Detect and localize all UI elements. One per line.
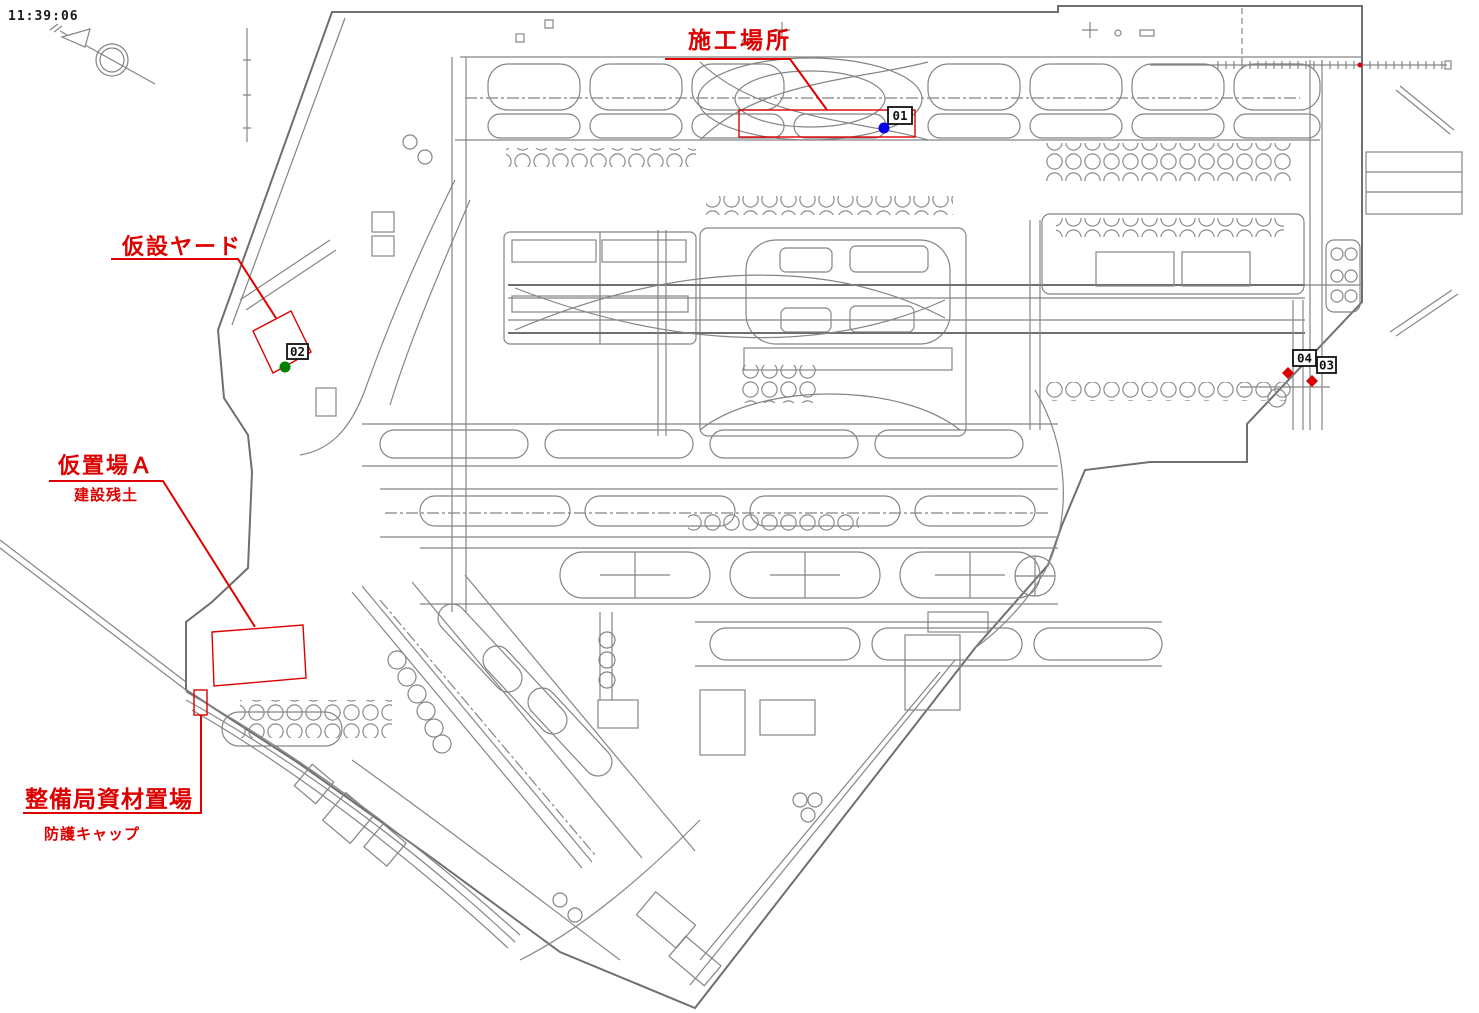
annotation-east-apron-markers: 04 03 bbox=[1282, 350, 1336, 387]
west-terminal bbox=[504, 232, 696, 344]
west-jetty bbox=[243, 28, 251, 142]
timestamp: 11:39:06 bbox=[8, 9, 79, 24]
marker-02-number: 02 bbox=[290, 344, 305, 359]
marker-03-dot bbox=[1306, 375, 1318, 387]
annotation-temporary-yard: 仮設ヤード 02 bbox=[111, 234, 311, 373]
construction-site-label: 施工場所 bbox=[688, 27, 792, 53]
annotation-temporary-storage-a: 仮置場Ａ 建設残土 bbox=[49, 453, 306, 686]
temporary-storage-a-hatch-area bbox=[212, 625, 306, 686]
approach-line-west bbox=[0, 540, 186, 690]
marker-02-dot bbox=[280, 362, 291, 373]
temporary-storage-a-label: 仮置場Ａ bbox=[57, 453, 154, 478]
survey-point-dot bbox=[1358, 63, 1363, 68]
southwest-diagonals bbox=[352, 575, 695, 868]
marker-04-number: 04 bbox=[1297, 351, 1312, 366]
annotation-construction-site: 施工場所 01 bbox=[665, 27, 915, 137]
west-apron-details bbox=[240, 135, 470, 455]
airport-linework bbox=[0, 6, 1462, 1008]
marker-01-dot bbox=[879, 123, 890, 134]
maintenance-storage-label: 整備局資材置場 bbox=[25, 786, 193, 812]
temporary-yard-label: 仮設ヤード bbox=[121, 234, 242, 259]
boundary-inner-edge bbox=[232, 18, 345, 325]
aircraft-stand-rows bbox=[240, 143, 1293, 738]
marker-03-number: 03 bbox=[1319, 358, 1334, 373]
temporary-storage-a-sublabel: 建設残土 bbox=[74, 486, 138, 504]
maintenance-storage-sublabel: 防護キャップ bbox=[44, 825, 140, 843]
site-plan-drawing: 施工場所 01 仮設ヤード 02 仮置場Ａ 建設残土 整備局資材置場 防護キャッ… bbox=[0, 0, 1479, 1013]
north-arrow-icon bbox=[50, 24, 155, 84]
temporary-yard-leader bbox=[111, 259, 276, 318]
marker-01-number: 01 bbox=[892, 108, 907, 123]
south-coastal-corridor bbox=[186, 612, 988, 986]
annotation-maintenance-storage: 整備局資材置場 防護キャップ bbox=[23, 690, 207, 843]
site-plan-screen: 施工場所 01 仮設ヤード 02 仮置場Ａ 建設残土 整備局資材置場 防護キャッ… bbox=[0, 0, 1479, 1013]
